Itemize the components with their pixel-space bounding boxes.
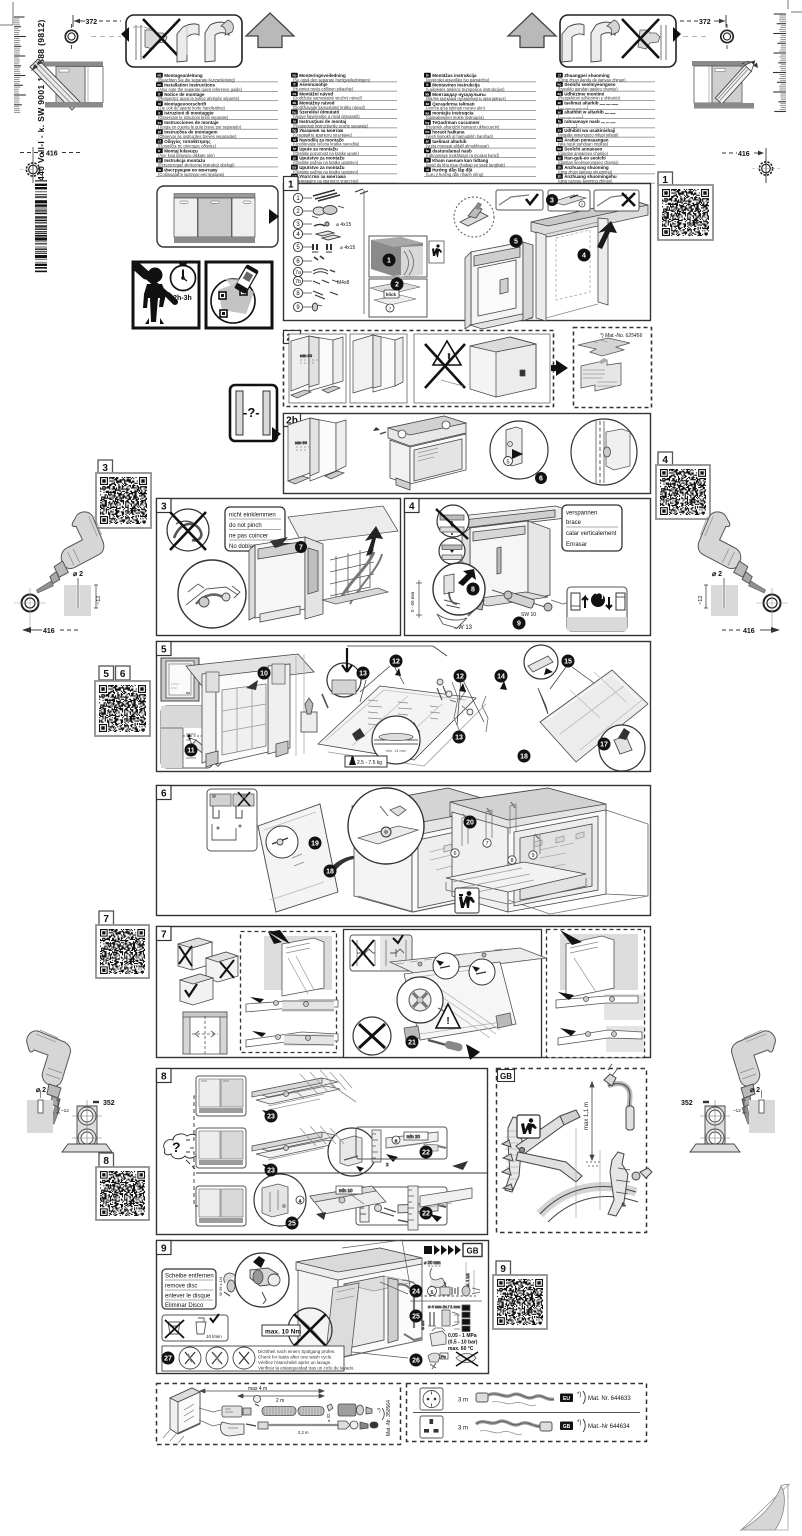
svg-text:8: 8 [471,587,475,594]
svg-text:7a: 7a [295,270,301,276]
svg-text:*): *) [577,1392,581,1398]
svg-text:W 29 x 1/4: W 29 x 1/4 [218,1276,223,1296]
svg-text:Check for leaks after one wash: Check for leaks after one wash cycle. [258,1355,333,1360]
svg-text:5: 5 [514,239,518,246]
svg-text:4: 4 [582,253,586,260]
svg-text:do not pinch: do not pinch [229,523,262,529]
svg-text:?: ? [172,1139,181,1155]
svg-text:12: 12 [392,659,400,666]
svg-text:min 20: min 20 [407,1134,421,1139]
svg-text:ne pas coincer: ne pas coincer [229,534,268,540]
svg-text:⌀ 2: ⌀ 2 [36,1087,46,1094]
svg-text:⌀ 2: ⌀ 2 [73,571,83,578]
svg-text:416: 416 [738,151,750,158]
svg-text:416: 416 [43,628,55,635]
svg-text:klick: klick [386,292,397,297]
svg-text:20: 20 [466,820,474,827]
svg-text:15: 15 [564,659,572,666]
svg-text:⌀ 4x15: ⌀ 4x15 [340,245,355,251]
svg-text:(Внимавајте на краткото упатст: (Внимавајте на краткото упатство) [293,179,359,184]
svg-text:remove disc: remove disc [165,1284,197,1290]
svg-text:6: 6 [161,788,167,799]
svg-text:19: 19 [311,841,319,848]
svg-text:7: 7 [161,929,167,940]
svg-text:10 l/min: 10 l/min [206,1334,222,1339]
svg-text:7: 7 [299,545,303,552]
svg-text:13: 13 [455,735,463,742]
svg-text:0,05 - 1 MPa: 0,05 - 1 MPa [448,1333,477,1339]
svg-text:21: 21 [408,1040,416,1047]
svg-text:Mat.-Nr. 350564: Mat.-Nr. 350564 [386,1400,392,1436]
svg-text:GB: GB [500,1072,512,1081]
svg-text:7: 7 [485,841,488,847]
svg-text:5: 5 [506,459,509,465]
svg-text:Dichtheit nach einem Spülgang: Dichtheit nach einem Spülgang prüfen. [258,1349,336,1354]
svg-text:EU: EU [563,1396,570,1402]
svg-text:min 10: min 10 [339,1188,353,1193]
svg-text:*): *) [577,1420,581,1426]
svg-text:⌀ 4x15: ⌀ 4x15 [336,222,351,228]
svg-text:3: 3 [161,501,167,512]
svg-text:brace: brace [566,520,582,526]
svg-text:(Lưu ý hướng dẫn nhanh riêng): (Lưu ý hướng dẫn nhanh riêng) [426,172,484,177]
svg-text:(qing canyue jianming zhinan): (qing canyue jianming zhinan) [558,179,613,184]
svg-text:2: 2 [395,282,399,289]
svg-text:416: 416 [46,151,58,158]
svg-text:(Соблюдайте краткую инструкцию: (Соблюдайте краткую инструкцию) [158,172,225,177]
svg-text:~12: ~12 [698,596,704,605]
svg-text:G 3/4": G 3/4" [421,1319,425,1330]
svg-text:~12: ~12 [96,596,102,605]
svg-text:SW 10: SW 10 [521,612,536,618]
svg-text:min 90: min 90 [295,440,308,445]
svg-text:Enrasar: Enrasar [566,542,587,548]
svg-text:5.: 5. [622,1202,626,1207]
svg-text:22: 22 [422,1150,430,1157]
svg-text:8: 8 [510,858,513,864]
svg-text:3 m: 3 m [458,1398,468,1404]
svg-text:8: 8 [103,1156,109,1167]
svg-text:5: 5 [161,644,167,655]
svg-text:25: 25 [288,1221,296,1228]
svg-text:22: 22 [422,1211,430,1218]
svg-text:Mat. Nr. 644633: Mat. Nr. 644633 [588,1396,631,1402]
svg-text:Eliminar Disco: Eliminar Disco [165,1303,204,1309]
svg-text:9: 9 [500,1264,506,1275]
svg-text:-?-: -?- [243,405,260,420]
svg-text:!: ! [446,1016,449,1027]
svg-text:verspannen: verspannen [566,511,597,517]
svg-text:~2h-3h: ~2h-3h [169,295,192,302]
svg-text:23: 23 [267,1114,275,1121]
svg-text:min 90: min 90 [300,353,313,358]
svg-text:Vérifiez l'étanchéité après un: Vérifiez l'étanchéité après un lavage. [258,1360,331,1365]
svg-text:⌀ 2: ⌀ 2 [750,1087,760,1094]
svg-text:10: 10 [260,671,268,678]
svg-text:GB: GB [467,1247,479,1256]
svg-text:max 1,1 m: max 1,1 m [584,1102,590,1130]
svg-text:calar verticalement: calar verticalement [566,531,617,537]
svg-text:1: 1 [288,179,294,190]
svg-text:416: 416 [743,628,755,635]
svg-text:~12: ~12 [61,1108,69,1113]
svg-text:352: 352 [681,1100,693,1107]
svg-text:7b: 7b [295,279,301,285]
svg-text:max. 60 °C: max. 60 °C [448,1346,474,1352]
svg-text:4: 4 [409,501,415,512]
svg-text:Fe: Fe [441,1354,446,1359]
svg-text:27: 27 [164,1356,172,1363]
svg-text:2 m: 2 m [276,1398,284,1404]
svg-text:Mat.-Nr 644634: Mat.-Nr 644634 [588,1424,630,1430]
svg-text:min. 14 mm: min. 14 mm [386,749,406,753]
svg-text:9: 9 [161,1243,167,1254]
svg-text:24: 24 [412,1289,420,1296]
svg-text:~12: ~12 [733,1108,741,1113]
svg-text:(0,5 - 10 bar): (0,5 - 10 bar) [448,1340,478,1346]
svg-text:Scheibe entfernen: Scheibe entfernen [165,1274,214,1280]
svg-text:2,2 m: 2,2 m [298,1430,309,1435]
svg-text:23: 23 [267,1168,275,1175]
svg-text:M4x8: M4x8 [337,280,349,286]
svg-text:5: 5 [103,669,109,680]
svg-text:17: 17 [600,742,608,749]
svg-text:nicht einklemmen: nicht einklemmen [229,513,276,519]
svg-text:0 - 60 mm: 0 - 60 mm [410,591,415,612]
svg-text:6: 6 [453,851,456,857]
svg-text:6: 6 [120,669,126,680]
svg-text:2.5 - 7.5 kg: 2.5 - 7.5 kg [357,760,382,766]
svg-text:7: 7 [103,914,109,925]
svg-text:max. 10 Nm: max. 10 Nm [265,1329,301,1336]
svg-text:440 Voll-l - k. SW 9001 170 3: 440 Voll-l - k. SW 9001 170 388 (9812) [36,19,46,181]
svg-text:enlever le disque: enlever le disque [165,1294,211,1300]
svg-text:8: 8 [161,1071,167,1082]
svg-text:max 4 m: max 4 m [248,1386,267,1392]
svg-text:9: 9 [531,853,534,859]
svg-text:3: 3 [550,198,554,205]
svg-text:11: 11 [187,748,195,755]
svg-text:14: 14 [497,674,505,681]
svg-text:⌀ 2: ⌀ 2 [712,571,722,578]
svg-text:372: 372 [86,19,98,26]
svg-text:⌀ 32: ⌀ 32 [326,1413,331,1422]
svg-text:372: 372 [699,19,711,26]
svg-text:26: 26 [412,1358,420,1365]
svg-text:*): *) [377,1408,381,1414]
svg-text:⌀ 20 mm: ⌀ 20 mm [424,1260,441,1265]
svg-text:9: 9 [517,621,521,628]
svg-text:25: 25 [412,1314,420,1321]
svg-text:1: 1 [387,258,391,265]
svg-text:18: 18 [520,754,528,761]
svg-text:352: 352 [103,1100,115,1107]
svg-text:Verificar la estanqueidad tras: Verificar la estanqueidad tras un ciclo … [258,1366,355,1371]
svg-text:6: 6 [539,476,543,483]
svg-text:GB: GB [563,1424,571,1430]
svg-text:18: 18 [326,869,334,876]
svg-text:3 m: 3 m [458,1426,468,1432]
svg-text:13: 13 [359,671,367,678]
